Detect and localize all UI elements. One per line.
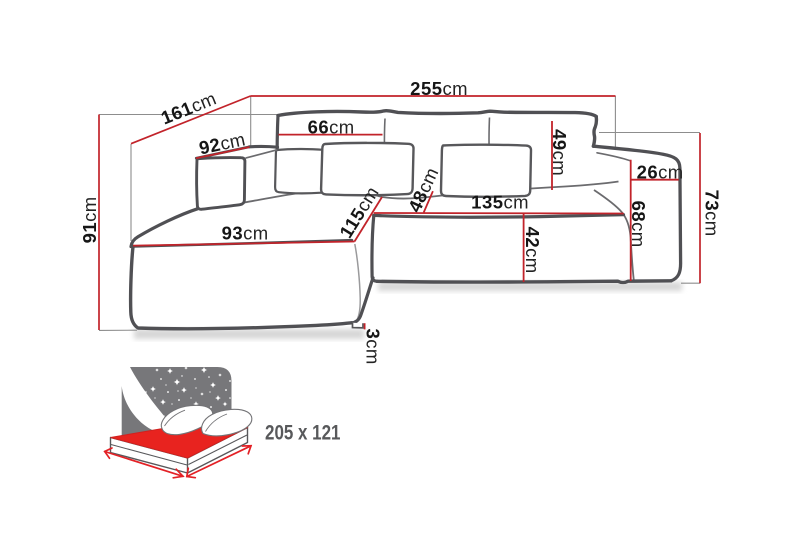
svg-text:255cm: 255cm — [410, 78, 468, 99]
svg-text:91cm: 91cm — [79, 197, 100, 244]
svg-text:135cm: 135cm — [471, 192, 529, 213]
svg-text:26cm: 26cm — [637, 162, 684, 183]
svg-text:49cm: 49cm — [549, 129, 570, 176]
svg-text:205 x 121: 205 x 121 — [265, 421, 341, 445]
svg-text:93cm: 93cm — [222, 223, 269, 244]
svg-text:42cm: 42cm — [522, 227, 543, 274]
svg-text:68cm: 68cm — [628, 201, 649, 248]
svg-text:66cm: 66cm — [308, 117, 355, 138]
svg-text:73cm: 73cm — [702, 190, 723, 237]
svg-text:3cm: 3cm — [363, 329, 384, 365]
